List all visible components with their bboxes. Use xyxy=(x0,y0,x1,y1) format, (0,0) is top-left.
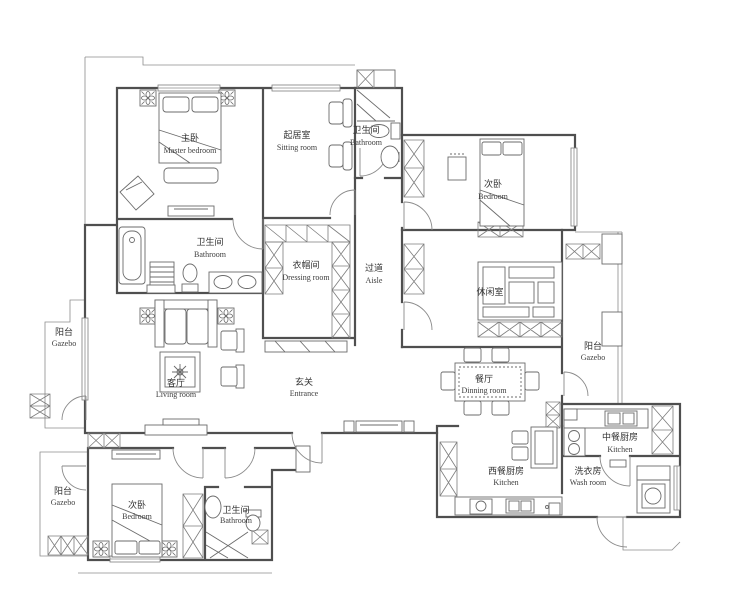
label-sitting-room-en: Sitting room xyxy=(277,143,318,152)
pillar xyxy=(602,234,622,264)
label-kitchen-chinese-en: Kitchen xyxy=(607,445,632,454)
column-flower-icon xyxy=(93,541,109,557)
pillow xyxy=(482,142,501,155)
chair xyxy=(120,176,154,210)
chair xyxy=(441,372,455,390)
chair xyxy=(512,431,528,444)
armchair-seat xyxy=(329,102,343,124)
label-aisle-cn: 过道 xyxy=(365,262,383,273)
chair xyxy=(464,348,481,362)
column-flower-icon xyxy=(140,308,156,324)
corner-unit xyxy=(564,409,577,420)
floor-plan-drawing: 主卧 Master bedroom 起居室 Sitting room 卫生间 B… xyxy=(0,0,740,600)
column-flower-icon xyxy=(140,90,156,106)
label-kitchen-chinese-cn: 中餐厨房 xyxy=(602,431,638,442)
floor-plan-canvas: 主卧 Master bedroom 起居室 Sitting room 卫生间 B… xyxy=(0,0,740,600)
pillar xyxy=(602,312,622,346)
label-leisure-room-cn: 休闲室 xyxy=(476,286,503,297)
label-bathroom-mid-en: Bathroom xyxy=(194,250,227,259)
tv-cabinet xyxy=(168,206,214,216)
sink xyxy=(381,146,399,168)
console-table xyxy=(265,341,347,352)
entrance-furniture xyxy=(265,341,414,432)
label-gazebo-right-cn: 阳台 xyxy=(584,340,602,351)
label-bathroom-bottom-cn: 卫生间 xyxy=(222,504,249,515)
sofa-cushion xyxy=(165,309,186,344)
label-kitchen-west-cn: 西餐厨房 xyxy=(488,465,524,476)
console-vase xyxy=(404,421,414,432)
pillow xyxy=(115,541,137,554)
pillow xyxy=(503,142,522,155)
tv-cabinet xyxy=(145,425,207,435)
pillow xyxy=(139,541,160,554)
label-master-bedroom-cn: 主卧 xyxy=(181,132,199,143)
duct-shaft xyxy=(357,70,395,88)
label-wash-room-cn: 洗衣房 xyxy=(574,465,601,476)
sitting-room-furniture xyxy=(329,99,352,170)
bench xyxy=(164,168,218,183)
pillow xyxy=(192,97,218,112)
label-entrance-en: Entrance xyxy=(290,389,319,398)
sofa-arm xyxy=(208,300,217,347)
sofa-cushion xyxy=(187,309,208,344)
label-bathroom-bottom-en: Bathroom xyxy=(220,516,253,525)
toilet-tank xyxy=(182,284,198,292)
pillar xyxy=(296,446,310,472)
chair xyxy=(464,401,481,415)
wash-room-furniture xyxy=(610,460,670,513)
label-gazebo-bottom-en: Gazebo xyxy=(51,498,75,507)
column-flower-icon xyxy=(218,308,234,324)
armchair-seat xyxy=(329,145,343,167)
label-living-room-en: Living room xyxy=(156,390,197,399)
label-kitchen-west-en: Kitchen xyxy=(493,478,518,487)
shower xyxy=(206,532,248,558)
sink xyxy=(205,496,221,518)
label-living-room-cn: 客厅 xyxy=(167,377,185,388)
tv xyxy=(163,419,199,425)
armchair-seat xyxy=(221,367,237,386)
chair xyxy=(492,348,509,362)
label-master-bedroom-en: Master bedroom xyxy=(164,146,217,155)
chair xyxy=(492,401,509,415)
dresser xyxy=(112,450,160,459)
stove xyxy=(549,503,560,515)
cooktop xyxy=(564,428,585,456)
shower xyxy=(357,90,395,121)
label-bathroom-top-en: Bathroom xyxy=(350,138,383,147)
label-gazebo-left-cn: 阳台 xyxy=(55,326,73,337)
label-gazebo-right-en: Gazebo xyxy=(581,353,605,362)
toilet xyxy=(183,264,197,282)
label-bathroom-mid-cn: 卫生间 xyxy=(196,236,223,247)
label-wash-room-en: Wash room xyxy=(570,478,607,487)
chair xyxy=(512,447,528,460)
vanity-counter xyxy=(209,272,262,293)
label-dressing-room-cn: 衣帽间 xyxy=(292,259,319,270)
shelf xyxy=(147,285,175,293)
label-dressing-room-en: Dressing room xyxy=(282,273,330,282)
label-bedroom-right-cn: 次卧 xyxy=(484,178,502,189)
sofa-arm xyxy=(155,300,164,347)
console-table xyxy=(356,421,402,432)
label-bedroom-bottom-cn: 次卧 xyxy=(128,499,146,510)
label-dining-room-cn: 餐厅 xyxy=(475,373,493,384)
chair xyxy=(525,372,539,390)
label-dining-room-en: Dinning room xyxy=(461,386,507,395)
armchair-seat xyxy=(221,331,237,350)
bathroom-mid-fixtures xyxy=(119,227,262,293)
console-vase xyxy=(344,421,354,432)
column-flower-icon xyxy=(161,541,177,557)
label-entrance-cn: 玄关 xyxy=(295,376,313,387)
label-gazebo-bottom-cn: 阳台 xyxy=(54,485,72,496)
label-bedroom-bottom-en: Bedroom xyxy=(122,512,153,521)
label-sitting-room-cn: 起居室 xyxy=(283,129,310,140)
shelf xyxy=(610,460,626,467)
desk xyxy=(448,157,466,180)
label-bathroom-top-cn: 卫生间 xyxy=(352,124,379,135)
label-gazebo-left-en: Gazebo xyxy=(52,339,76,348)
pillow xyxy=(163,97,189,112)
toilet-tank xyxy=(391,123,400,139)
label-aisle-en: Aisle xyxy=(366,276,383,285)
label-bedroom-right-en: Bedroom xyxy=(478,192,509,201)
armchair-back xyxy=(343,99,352,127)
